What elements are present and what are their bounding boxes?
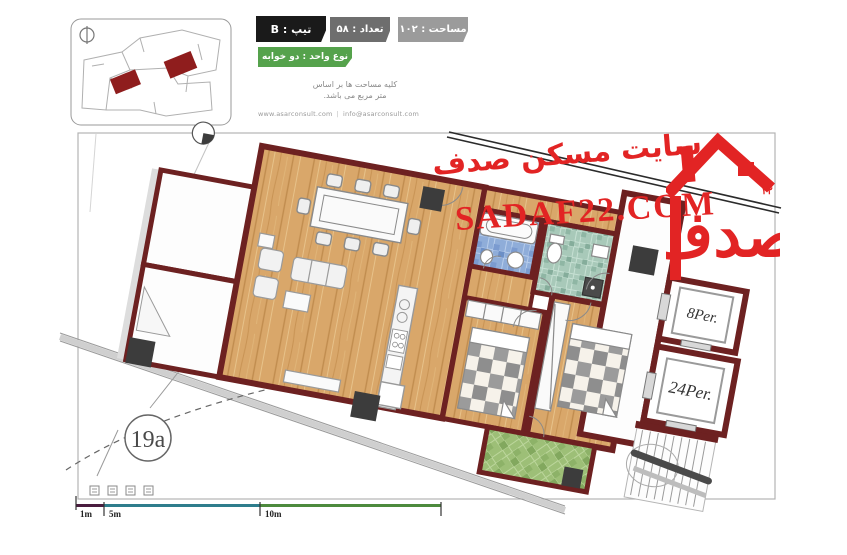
detail-bubble: 19a (125, 415, 171, 461)
page: تیپ : B تعداد : ۵۸ مساحت : ۱۰۲ نوع واحد … (0, 0, 847, 555)
sadaf-logo: ۲۲ صدف (666, 128, 780, 288)
fridge (377, 382, 405, 409)
scale-label-5m: 5m (109, 509, 122, 519)
logo-number: ۲۲ (762, 186, 773, 197)
scale-label-10m: 10m (265, 509, 282, 519)
detail-ref-label: 19a (131, 427, 166, 453)
scale-label-1m: 1m (80, 509, 93, 519)
logo-wordmark: صدف (666, 202, 780, 270)
